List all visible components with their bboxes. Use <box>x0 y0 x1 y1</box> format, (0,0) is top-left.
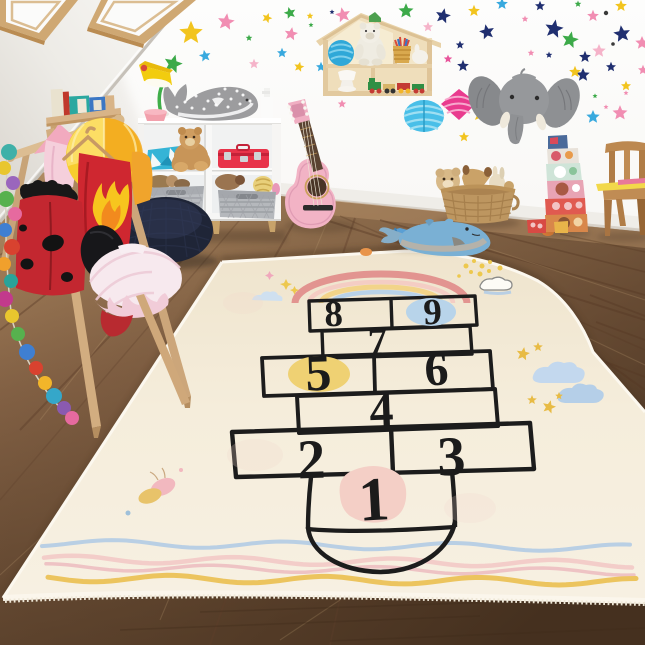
svg-text:1: 1 <box>357 465 392 535</box>
svg-text:6: 6 <box>424 343 450 397</box>
svg-text:2: 2 <box>296 429 326 492</box>
svg-text:9: 9 <box>423 292 443 334</box>
svg-text:7: 7 <box>367 320 388 364</box>
svg-text:4: 4 <box>369 384 395 438</box>
svg-text:5: 5 <box>304 345 332 403</box>
svg-text:8: 8 <box>324 294 344 336</box>
svg-text:3: 3 <box>436 426 466 489</box>
